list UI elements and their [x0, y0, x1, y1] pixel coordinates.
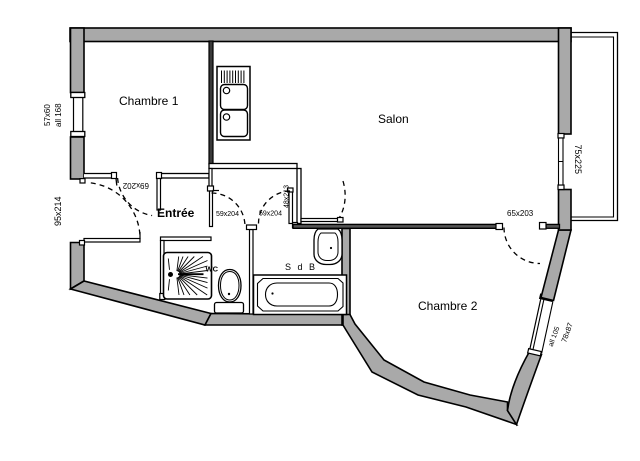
svg-text:all 168: all 168 [54, 103, 63, 127]
svg-text:Entrée: Entrée [157, 206, 195, 220]
svg-text:S d B: S d B [285, 262, 317, 272]
svg-text:WC: WC [206, 265, 219, 274]
svg-text:Salon: Salon [378, 112, 409, 126]
svg-text:59x204: 59x204 [259, 211, 282, 218]
svg-text:48x213: 48x213 [284, 185, 291, 208]
svg-text:65x203: 65x203 [507, 209, 534, 218]
svg-text:Chambre 1: Chambre 1 [119, 94, 179, 108]
svg-text:69x202: 69x202 [122, 181, 149, 190]
svg-text:59x204: 59x204 [216, 211, 239, 218]
svg-text:57x60: 57x60 [43, 104, 52, 126]
svg-text:75x225: 75x225 [573, 145, 583, 175]
svg-text:95x214: 95x214 [53, 196, 63, 226]
svg-text:Chambre 2: Chambre 2 [418, 299, 478, 313]
